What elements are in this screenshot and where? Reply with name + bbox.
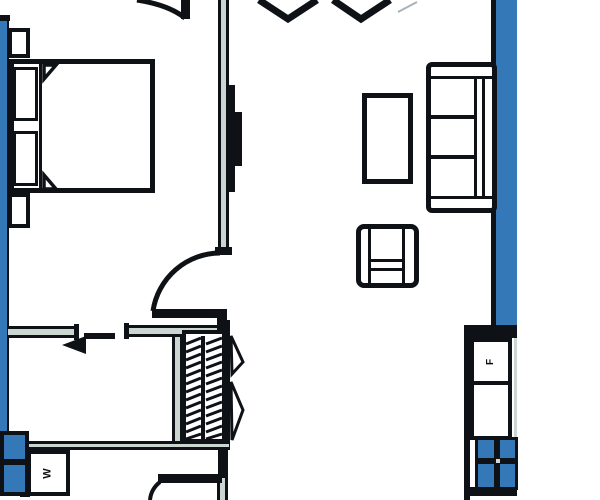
chevron-mark-2	[333, 0, 390, 19]
closet-hangers-right	[206, 338, 222, 439]
bifold-door-leaf-2	[231, 382, 243, 440]
faint-chevron-remnant	[398, 2, 417, 12]
bed-corner-fold-bottom	[44, 175, 56, 189]
chevron-mark-1	[259, 0, 317, 19]
top-door-swing-arc	[137, 0, 185, 18]
bathroom-door-swing-arc	[150, 482, 160, 500]
floor-plan-canvas: W F	[0, 0, 600, 500]
bifold-door-leaf-1	[231, 336, 243, 374]
entry-arrow-head	[62, 336, 86, 354]
bedroom-door-swing-arc	[153, 253, 220, 311]
bed-corner-fold-top	[44, 65, 56, 79]
closet-hangers-left	[186, 338, 201, 439]
plan-annotations	[0, 0, 600, 500]
